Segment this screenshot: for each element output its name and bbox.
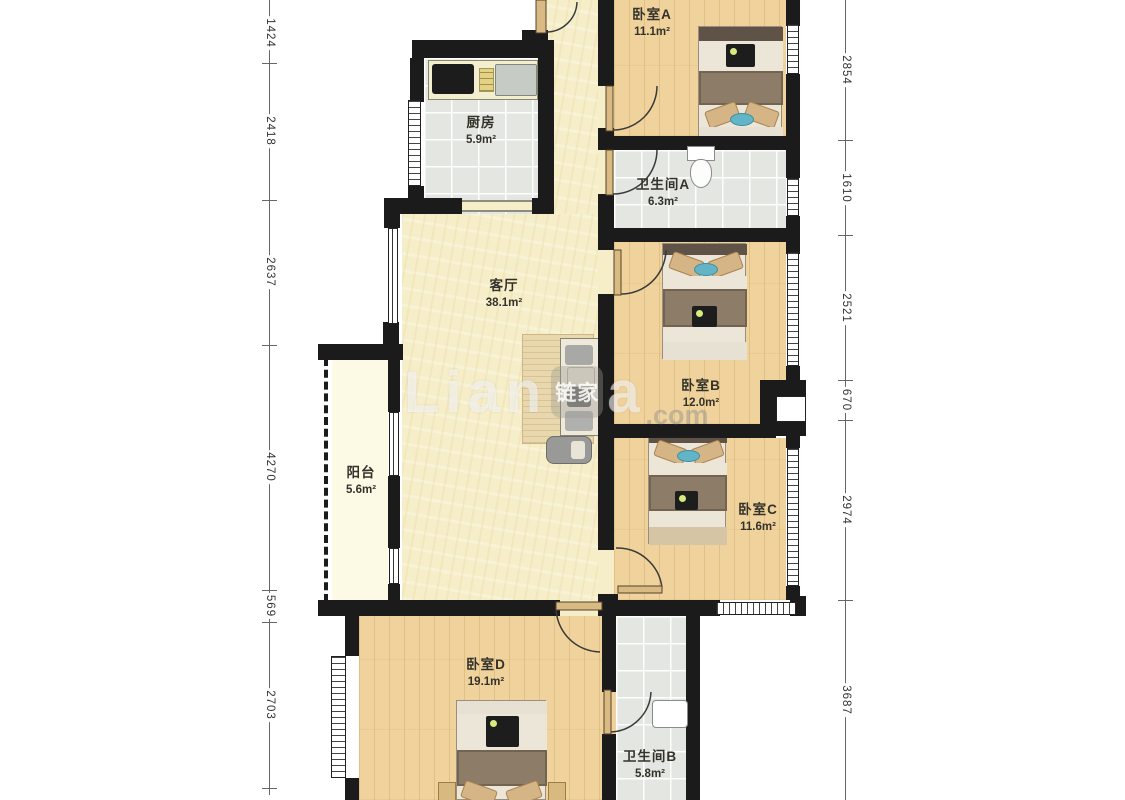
door-arc-icon xyxy=(610,692,651,732)
dimension-tick xyxy=(262,590,277,591)
dimension-label: 2703 xyxy=(263,688,277,722)
room-name: 卧室B xyxy=(681,374,721,394)
room-label-bedroom-d: 卧室D 19.1m² xyxy=(466,653,506,688)
dimension-tick xyxy=(838,140,853,141)
dimension-label: 2974 xyxy=(839,493,853,527)
door-arc-icon xyxy=(556,606,600,652)
dimension-tick xyxy=(838,235,853,236)
room-label-bedroom-b: 卧室B 12.0m² xyxy=(681,374,721,409)
dimension-label: 2521 xyxy=(839,291,853,325)
dimension-tick xyxy=(262,200,277,201)
room-label-living-room: 客厅 38.1m² xyxy=(486,274,522,309)
room-area: 38.1m² xyxy=(486,297,522,309)
dimension-tick xyxy=(838,600,853,601)
door-arc-icon xyxy=(613,86,657,130)
dimension-tick xyxy=(262,63,277,64)
room-area: 5.6m² xyxy=(346,484,376,496)
room-area: 11.6m² xyxy=(738,521,778,533)
dimension-tick xyxy=(262,788,277,789)
door-leaf-icon xyxy=(536,0,546,33)
room-area: 5.9m² xyxy=(466,134,496,146)
door-leaf-icon xyxy=(556,602,602,610)
dimension-label: 4270 xyxy=(263,450,277,484)
dimension-tick xyxy=(838,380,853,381)
door-leaf-icon xyxy=(606,150,613,195)
room-name: 卫生间B xyxy=(623,745,677,765)
door-leaf-icon xyxy=(606,86,613,131)
dimension-label: 2418 xyxy=(263,114,277,148)
room-label-kitchen: 厨房 5.9m² xyxy=(466,111,496,146)
room-label-bedroom-c: 卧室C 11.6m² xyxy=(738,498,778,533)
room-name: 厨房 xyxy=(466,111,496,131)
room-name: 卧室D xyxy=(466,653,506,673)
door-arc-icon xyxy=(616,548,662,588)
floor-plan: 卧室A 11.1m² 厨房 5.9m² 卫生间A 6.3m² 客厅 38.1m²… xyxy=(0,0,1125,800)
door-arc-icon xyxy=(546,2,577,32)
dimension-tick xyxy=(262,622,277,623)
room-area: 12.0m² xyxy=(681,397,721,409)
room-name: 卧室C xyxy=(738,498,778,518)
dimension-label: 1610 xyxy=(839,171,853,205)
room-area: 11.1m² xyxy=(632,26,672,38)
room-label-bedroom-a: 卧室A 11.1m² xyxy=(632,3,672,38)
dimension-label: 670 xyxy=(839,387,853,413)
room-name: 阳台 xyxy=(346,461,376,481)
dimension-label: 2637 xyxy=(263,255,277,289)
dimension-label: 2854 xyxy=(839,53,853,87)
door-leaf-icon xyxy=(618,586,662,593)
room-area: 5.8m² xyxy=(623,768,677,780)
room-name: 卧室A xyxy=(632,3,672,23)
door-arc-icon xyxy=(621,250,666,294)
room-label-bathroom-a: 卫生间A 6.3m² xyxy=(636,173,690,208)
room-area: 19.1m² xyxy=(466,676,506,688)
room-area: 6.3m² xyxy=(636,196,690,208)
door-arcs-layer xyxy=(0,0,1125,800)
room-name: 卫生间A xyxy=(636,173,690,193)
dimension-label: 3687 xyxy=(839,683,853,717)
room-label-bathroom-b: 卫生间B 5.8m² xyxy=(623,745,677,780)
door-leaf-icon xyxy=(604,690,611,734)
dimension-label: 569 xyxy=(263,593,277,619)
dimension-label: 1424 xyxy=(263,16,277,50)
room-label-balcony: 阳台 5.6m² xyxy=(346,461,376,496)
dimension-tick xyxy=(838,420,853,421)
dimension-tick xyxy=(262,345,277,346)
door-leaf-icon xyxy=(614,250,621,295)
room-name: 客厅 xyxy=(486,274,522,294)
